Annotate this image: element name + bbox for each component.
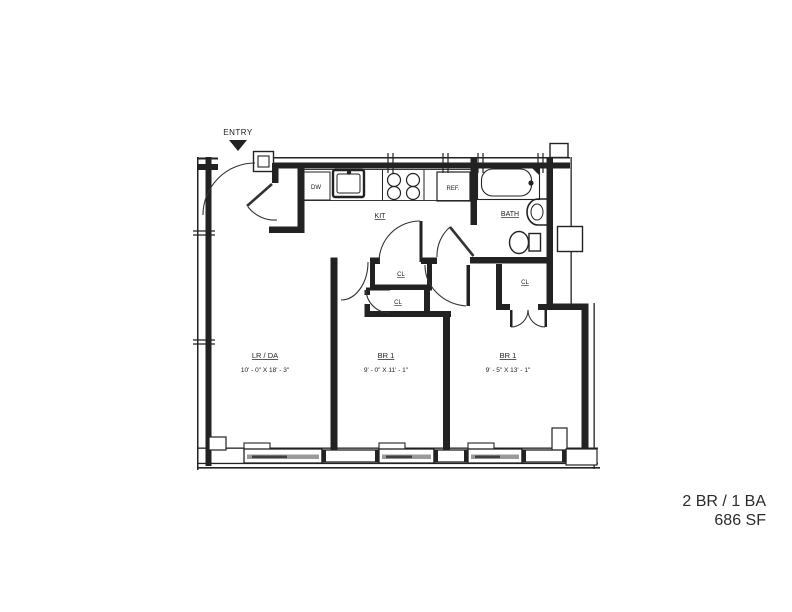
bedroom1-dims: 9' - 0" X 11' - 1" xyxy=(364,367,409,374)
toilet-tank xyxy=(529,234,541,252)
floor-plan-page: ENTRY KIT BATH CL CL CL DW REF. LR / DA … xyxy=(0,0,792,612)
wall xyxy=(471,157,478,225)
dishwasher-label: DW xyxy=(311,185,321,191)
closet3-door-arc-left xyxy=(511,310,528,327)
windows xyxy=(244,443,566,463)
bathtub-knob xyxy=(528,180,533,185)
wall-box xyxy=(434,450,468,462)
wall xyxy=(206,157,212,466)
bottom-right-corner-block xyxy=(566,449,597,465)
wall xyxy=(272,163,279,183)
entry-closet-door-leaf xyxy=(247,184,272,206)
wall xyxy=(365,290,371,295)
wall xyxy=(470,257,553,264)
wall-box xyxy=(322,450,379,462)
bath-sink-bowl xyxy=(531,204,543,220)
bathtub-inner xyxy=(482,169,532,196)
bedroom2-label: BR 1 xyxy=(500,351,517,360)
bath-door-arc xyxy=(437,227,450,257)
br2-door-leaf xyxy=(467,265,471,306)
unit-area-text: 686 SF xyxy=(682,511,766,530)
kitchen-counter xyxy=(300,170,472,201)
wall xyxy=(269,227,305,234)
kitchen-faucet xyxy=(347,170,351,174)
stove-burner xyxy=(407,174,420,187)
wall xyxy=(432,258,437,265)
entry-jamb-block-inner xyxy=(258,156,269,167)
entry-label: ENTRY xyxy=(223,128,253,137)
wall xyxy=(253,157,570,159)
bath-sink xyxy=(527,199,547,225)
toilet-bowl xyxy=(510,232,529,254)
pilaster xyxy=(558,227,583,252)
kitchen-sink-basin xyxy=(337,174,360,193)
wall xyxy=(424,290,430,317)
wall xyxy=(443,311,450,450)
entry-closet-door-arc xyxy=(248,207,277,220)
wall-box xyxy=(522,450,566,462)
top-right-cap xyxy=(550,144,568,158)
br1-door-arc xyxy=(341,262,368,300)
closet2-door-leaf xyxy=(366,288,390,291)
bath-door-leaf xyxy=(450,227,474,256)
stove-burner xyxy=(388,187,401,200)
entry-arrow-icon xyxy=(229,140,247,151)
bathroom-fixtures xyxy=(478,166,547,254)
closet1-door-arc xyxy=(379,221,420,262)
wall xyxy=(538,304,553,310)
living-room-dims: 10' - 0" X 18' - 3" xyxy=(241,367,290,374)
closet3-door-leaf-right xyxy=(545,310,548,327)
wall xyxy=(197,467,600,469)
unit-type-text: 2 BR / 1 BA xyxy=(682,492,766,511)
closet3-door-leaf-left xyxy=(510,310,513,327)
stove-burner xyxy=(407,187,420,200)
bath-label: BATH xyxy=(501,211,519,218)
wall xyxy=(594,303,595,469)
wall xyxy=(582,304,589,465)
wall xyxy=(496,264,502,310)
wall xyxy=(547,157,554,264)
closet2-label: CL xyxy=(394,300,402,306)
bedroom2-dims: 9' - 5" X 13' - 1" xyxy=(486,367,531,374)
wall xyxy=(331,258,338,451)
bottom-right-pier xyxy=(552,428,567,452)
bedroom1-label: BR 1 xyxy=(378,351,395,360)
floor-plan-svg: ENTRY KIT BATH CL CL CL DW REF. LR / DA … xyxy=(0,0,792,612)
stove-burner xyxy=(388,174,401,187)
kitchen-label: KIT xyxy=(375,213,387,220)
wall xyxy=(365,311,431,317)
refrigerator-label: REF. xyxy=(446,186,459,192)
bottom-left-pier xyxy=(209,437,226,450)
wall xyxy=(430,311,451,317)
living-room-label: LR / DA xyxy=(252,351,278,360)
wall xyxy=(197,157,199,470)
closet3-door-arc-right xyxy=(528,310,545,327)
unit-summary: 2 BR / 1 BA 686 SF xyxy=(682,492,766,530)
interior-walls xyxy=(269,157,553,451)
wall xyxy=(496,304,510,310)
closet1-door-leaf xyxy=(420,221,423,262)
closet1-label: CL xyxy=(397,272,405,278)
doors xyxy=(203,163,547,327)
closet3-label: CL xyxy=(521,280,529,286)
wall xyxy=(547,264,554,310)
